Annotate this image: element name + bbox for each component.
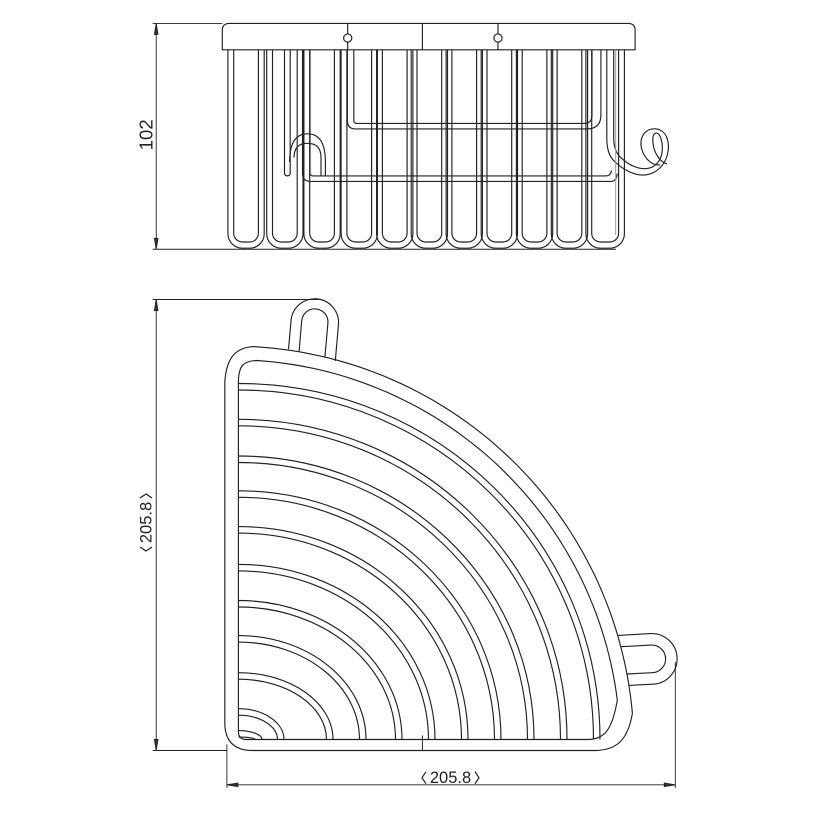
- svg-text:102: 102: [136, 119, 157, 150]
- svg-text:205.8: 205.8: [138, 502, 156, 543]
- svg-text:205.8: 205.8: [430, 769, 471, 787]
